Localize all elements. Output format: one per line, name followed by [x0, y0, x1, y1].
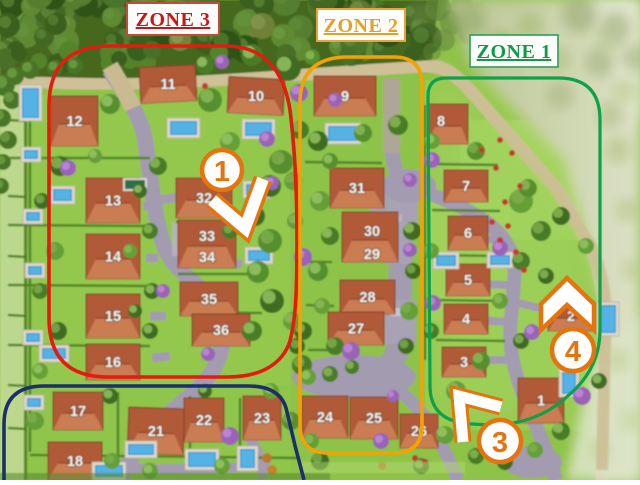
svg-text:34: 34	[199, 250, 215, 266]
svg-text:17: 17	[70, 404, 86, 420]
svg-text:23: 23	[254, 411, 270, 427]
svg-text:21: 21	[148, 424, 164, 440]
svg-text:28: 28	[359, 290, 375, 306]
svg-text:10: 10	[248, 89, 264, 105]
svg-text:7: 7	[462, 179, 470, 195]
svg-text:4: 4	[462, 312, 470, 328]
svg-text:6: 6	[464, 226, 472, 242]
svg-text:33: 33	[199, 229, 215, 245]
svg-text:31: 31	[349, 181, 365, 197]
svg-text:25: 25	[366, 411, 382, 427]
svg-text:ZONE 3: ZONE 3	[136, 9, 211, 31]
svg-text:1: 1	[214, 156, 230, 188]
svg-text:ZONE 2: ZONE 2	[324, 15, 399, 37]
svg-text:11: 11	[160, 77, 175, 93]
svg-text:3: 3	[460, 355, 468, 371]
svg-text:18: 18	[67, 454, 83, 470]
svg-text:15: 15	[105, 309, 121, 325]
svg-text:13: 13	[105, 194, 121, 210]
svg-text:35: 35	[201, 292, 217, 308]
svg-text:16: 16	[105, 355, 121, 371]
svg-text:3: 3	[492, 427, 508, 459]
svg-text:ZONE 1: ZONE 1	[477, 41, 552, 63]
svg-text:27: 27	[348, 322, 364, 338]
svg-text:1: 1	[537, 394, 545, 410]
svg-text:5: 5	[464, 273, 472, 289]
svg-text:24: 24	[317, 410, 333, 426]
svg-text:22: 22	[196, 413, 212, 429]
svg-text:30: 30	[364, 224, 380, 240]
svg-text:9: 9	[341, 89, 349, 105]
svg-text:12: 12	[66, 114, 82, 130]
svg-text:36: 36	[213, 323, 229, 339]
svg-text:4: 4	[565, 336, 581, 368]
svg-text:29: 29	[364, 247, 380, 263]
svg-text:14: 14	[105, 250, 121, 266]
svg-text:8: 8	[437, 114, 445, 130]
